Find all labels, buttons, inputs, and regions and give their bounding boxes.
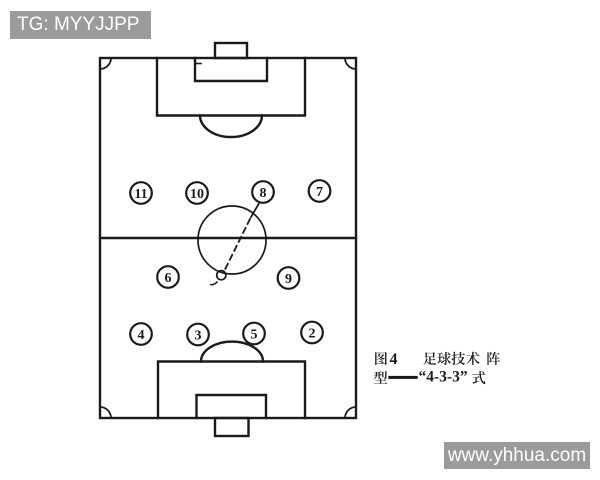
svg-text:4: 4 bbox=[138, 328, 145, 343]
svg-text:11: 11 bbox=[134, 187, 147, 202]
svg-text:2: 2 bbox=[309, 326, 316, 341]
svg-text:“4-3-3”: “4-3-3” bbox=[419, 369, 468, 386]
svg-text:7: 7 bbox=[316, 185, 323, 200]
svg-text:3: 3 bbox=[195, 328, 202, 343]
svg-text:6: 6 bbox=[165, 271, 172, 286]
svg-text:8: 8 bbox=[260, 186, 267, 201]
svg-text:4: 4 bbox=[390, 351, 398, 368]
svg-text:9: 9 bbox=[285, 272, 292, 287]
svg-text:5: 5 bbox=[251, 327, 258, 342]
svg-text:10: 10 bbox=[190, 187, 204, 202]
